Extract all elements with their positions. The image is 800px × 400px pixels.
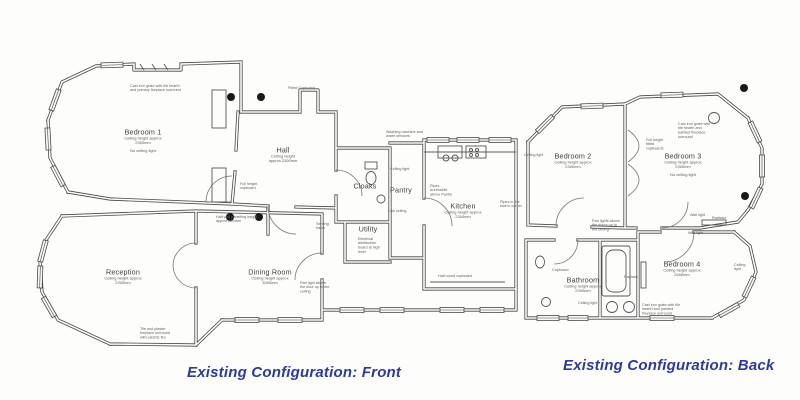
room-name: Bedroom 4 bbox=[637, 260, 727, 268]
note-distribution-board: Electrical distribution board at high le… bbox=[358, 237, 384, 255]
ceiling-dot bbox=[740, 84, 748, 92]
room-name: Pantry bbox=[374, 186, 428, 194]
note-part-light-door: Part light above the door up to the ceil… bbox=[300, 281, 331, 294]
note-ceiling-light-pantry: Ceiling light bbox=[390, 167, 411, 171]
note-cupboard-bathroom: Cupboard bbox=[552, 268, 574, 272]
room-bathroom: Bathroom Ceiling height approx 2300mm bbox=[541, 276, 625, 294]
note-washing-services: Washing machine and water services bbox=[386, 130, 426, 139]
ceiling-dot bbox=[741, 192, 749, 200]
room-sub: 2300mm bbox=[541, 289, 625, 294]
note-fireplace-bedroom3: Cast iron grate with tile hearth and pai… bbox=[678, 122, 714, 140]
note-half-round-cupboard: Half round cupboard bbox=[438, 274, 477, 278]
room-sub: approx 2300mm bbox=[253, 159, 313, 164]
room-bedroom1: Bedroom 1 Ceiling height approx 2300mm N… bbox=[98, 128, 188, 154]
note-fitted-cupboards-bedroom3: Full height fitted cupboards bbox=[646, 138, 671, 151]
room-bedroom4: Bedroom 4 Ceiling height approx 2600mm bbox=[637, 260, 727, 278]
caption-back: Existing Configuration: Back bbox=[563, 357, 774, 374]
room-hall: Hall Ceiling height approx 2300mm bbox=[253, 146, 313, 164]
room-bedroom3: Bedroom 3 Ceiling height approx 2300mm N… bbox=[638, 152, 728, 178]
note-low-ceiling-pantry: Low ceiling bbox=[388, 209, 409, 213]
room-reception: Reception Ceiling height approx 2300mm bbox=[78, 268, 168, 286]
note-reception-fireplace: Tile and plaster fireplace surround with… bbox=[140, 327, 174, 340]
note-ceiling-light-bathroom: Ceiling light bbox=[578, 301, 598, 305]
room-name: Bathroom bbox=[541, 276, 625, 284]
room-kitchen: Kitchen Ceiling height approx 2300mm bbox=[421, 202, 505, 220]
room-pantry: Pantry bbox=[374, 186, 428, 194]
note-pipes-pantry: Pipes accessible above Pantry bbox=[430, 184, 454, 197]
room-sub: 2300mm bbox=[638, 165, 728, 170]
floorplan-drawing bbox=[0, 0, 800, 400]
room-utility: Utility bbox=[341, 225, 395, 233]
note-serving-hatch: Serving hatch bbox=[316, 222, 338, 231]
room-sub: No ceiling light bbox=[98, 149, 188, 154]
front-fixtures bbox=[140, 64, 516, 282]
note-fireplace-bedroom1: Cast iron grate with tile hearth and pri… bbox=[130, 84, 185, 93]
note-pipes-corner: Pipes in the wall in corner bbox=[500, 200, 523, 209]
note-wall-light-bedroom3: Wall light bbox=[690, 213, 709, 217]
note-full-height-cupboard: Full height cupboard bbox=[240, 182, 272, 191]
room-sub: 2600mm bbox=[637, 273, 727, 278]
note-ceiling-light-bedroom4: Ceiling light bbox=[734, 263, 751, 272]
note-half-wall-panelling: Half wall panelling height approx 800mm bbox=[216, 215, 260, 224]
note-radiator-bathroom: Radiator bbox=[624, 275, 641, 279]
room-name: Utility bbox=[341, 225, 395, 233]
note-radiator-bedroom3: Radiator bbox=[712, 216, 729, 220]
note-fitted-cupboard: Fitted Cupboard bbox=[288, 86, 316, 90]
room-name: Kitchen bbox=[421, 202, 505, 210]
room-name: Bedroom 3 bbox=[638, 152, 728, 160]
room-name: Bedroom 1 bbox=[98, 128, 188, 136]
note-part-lights-doors: Part lights above the doors up to the ce… bbox=[592, 219, 623, 232]
ceiling-dot bbox=[257, 93, 265, 101]
room-name: Hall bbox=[253, 146, 313, 154]
room-sub: 2300mm bbox=[98, 141, 188, 146]
room-sub: 2300mm bbox=[78, 281, 168, 286]
caption-front: Existing Configuration: Front bbox=[187, 364, 401, 381]
room-sub: 2300mm bbox=[421, 215, 505, 220]
ceiling-dot bbox=[227, 93, 235, 101]
room-sub: No ceiling light bbox=[638, 173, 728, 178]
room-name: Dining Room bbox=[222, 268, 318, 276]
note-fireplace-bedroom4: Cast iron grate with tile hearth and pai… bbox=[642, 303, 682, 316]
floorplan-scan-page: Bedroom 1 Ceiling height approx 2300mm N… bbox=[0, 0, 800, 400]
note-ceiling-light-bedroom2: Ceiling light bbox=[524, 153, 544, 157]
note-wall-light-bedroom4: Wall light bbox=[688, 231, 707, 235]
room-name: Reception bbox=[78, 268, 168, 276]
room-sub: 2300mm bbox=[528, 165, 618, 170]
